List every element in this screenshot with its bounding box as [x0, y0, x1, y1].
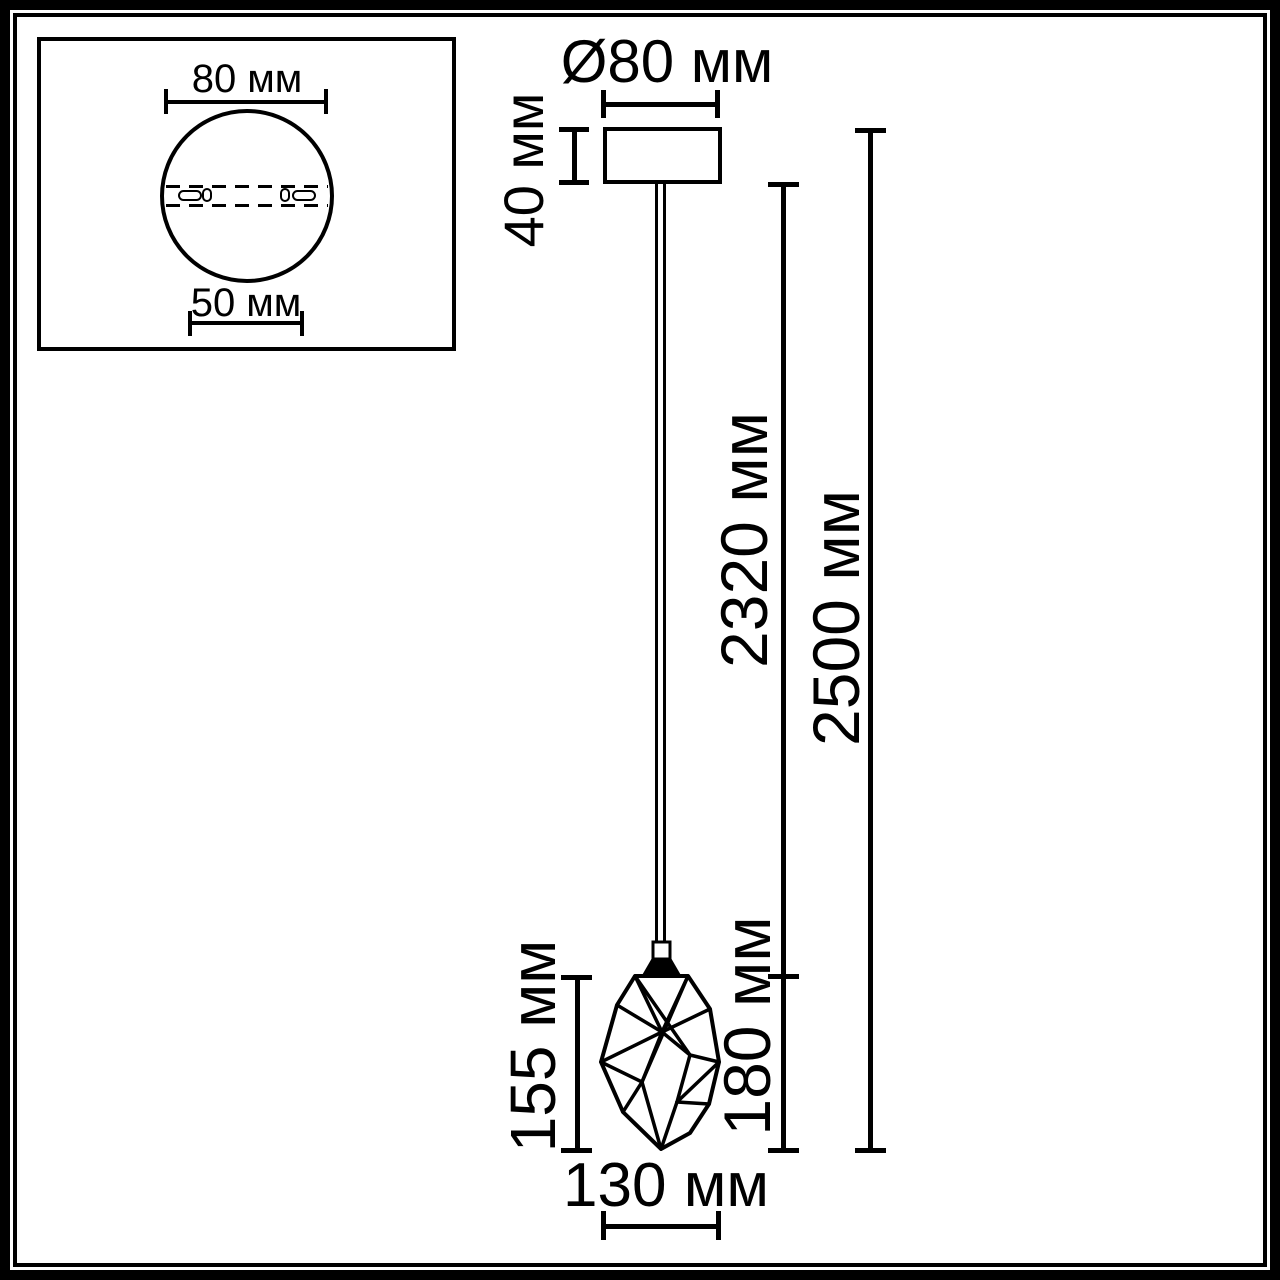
mount-slot-left: [178, 190, 202, 201]
shade-width-label: 130 мм: [563, 1155, 769, 1217]
shade-width-dim-line: [603, 1224, 721, 1229]
dim-tick: [300, 311, 304, 336]
dim-tick: [324, 89, 328, 114]
dim-tick: [559, 127, 589, 132]
dim-tick: [601, 90, 606, 118]
shade-socket-height-label: 180 мм: [714, 916, 780, 1135]
mount-hole-left: [202, 188, 212, 202]
dim-tick: [716, 1211, 721, 1240]
inset-hole-spacing-label: 50 мм: [191, 283, 302, 323]
canopy-diameter-label: Ø80 мм: [561, 32, 774, 92]
dim-tick: [559, 180, 589, 185]
dim-tick: [768, 974, 799, 979]
cord-length-label: 2320 мм: [711, 412, 777, 668]
mount-slot-right: [292, 190, 316, 201]
total-height-label: 2500 мм: [803, 490, 869, 746]
ceiling-canopy: [603, 127, 722, 184]
canopy-height-dim-line: [572, 129, 577, 183]
mount-bracket-dashed-line: [166, 204, 328, 207]
inset-diameter-label: 80 мм: [192, 59, 303, 99]
suspension-cable: [655, 183, 666, 944]
dim-tick: [601, 1211, 606, 1240]
canopy-diameter-dim-line: [604, 102, 718, 107]
cord-length-dim-line: [781, 184, 786, 1152]
dim-tick: [188, 311, 192, 336]
inset-hole-spacing-dim-line: [190, 321, 304, 325]
total-height-dim-line: [868, 130, 873, 1152]
shade-outline: [601, 976, 719, 1149]
dim-tick: [768, 1148, 799, 1153]
dim-tick: [855, 128, 886, 133]
mount-bracket-dashed-line: [166, 185, 328, 188]
dimension-drawing: 80 мм 50 мм Ø80 мм 40 мм: [0, 0, 1280, 1280]
dim-tick: [164, 89, 168, 114]
canopy-height-label: 40 мм: [496, 93, 552, 248]
shade-height-dim-line: [575, 977, 580, 1152]
dim-tick: [855, 1148, 886, 1153]
dim-tick: [715, 90, 720, 118]
dim-tick: [561, 975, 592, 980]
inset-diameter-dim-line: [166, 100, 326, 104]
socket-fitting: [653, 942, 670, 959]
shade-height-label: 155 мм: [501, 940, 565, 1153]
dim-tick: [768, 182, 799, 187]
mount-hole-right: [280, 188, 290, 202]
socket-cap: [641, 958, 682, 977]
